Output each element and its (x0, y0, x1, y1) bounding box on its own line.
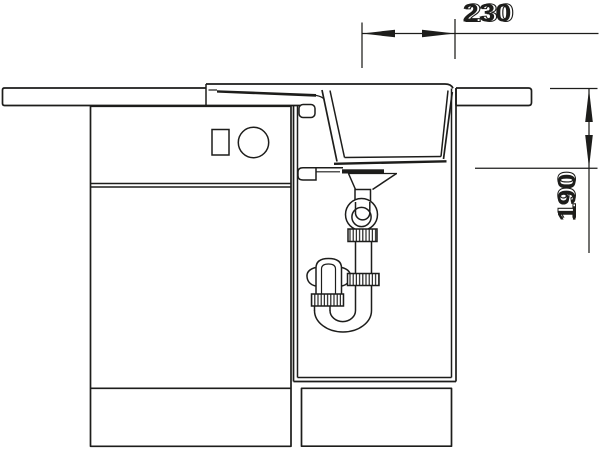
mounting-clips (298, 105, 343, 181)
dim190-arrow-down (585, 135, 593, 168)
sink-cabinet-plinth (302, 388, 452, 446)
drainer-slope (217, 90, 316, 97)
left-cabinet-outline (91, 106, 292, 446)
union-nut-middle (348, 274, 380, 286)
p-trap (307, 229, 379, 332)
square-knob (212, 130, 229, 156)
left-cabinet (91, 106, 292, 446)
ball-joint-inner-ring (352, 207, 371, 226)
elbow-wing-left (307, 268, 316, 287)
countertop-right-slab (456, 88, 532, 106)
round-knob (238, 127, 268, 157)
downpipe-upper (356, 242, 372, 274)
left-mounting-clip-bottom (298, 168, 343, 180)
union-nut-left (312, 294, 344, 306)
dim230-arrow-left (362, 30, 395, 38)
dim190-arrow-up (585, 89, 593, 122)
dimension-depth-190: 190 190 (475, 89, 598, 254)
dim230-arrow-right (422, 30, 455, 38)
sink-cabinet (294, 89, 457, 447)
union-nut-top (348, 229, 377, 242)
sink-installation-drawing: 230 230 190 190 (0, 0, 600, 450)
left-mounting-clip-top (299, 105, 315, 118)
dimension-width-230: 230 230 (362, 0, 599, 68)
sink-rim-top (206, 84, 453, 88)
bowl-inner-bottom (345, 157, 442, 158)
countertop-left-slab (3, 88, 308, 106)
sink-unit (206, 84, 453, 164)
drain-assembly (342, 169, 397, 230)
funnel-walls (349, 174, 397, 190)
bowl-left-wall-inner (330, 91, 345, 158)
u-bend-inner (330, 311, 356, 322)
downpipe-lower (356, 286, 372, 311)
dim230-label: 230 (463, 0, 512, 28)
technical-drawing-svg: 230 230 190 190 (0, 0, 600, 450)
outlet-elbow-inner (322, 264, 336, 295)
drain-flange (342, 169, 384, 173)
bowl-outer-bottom (334, 161, 447, 164)
dim190-label: 190 (554, 174, 582, 222)
drawer-divider-line (91, 184, 292, 188)
bowl-left-wall-outer (322, 90, 337, 162)
